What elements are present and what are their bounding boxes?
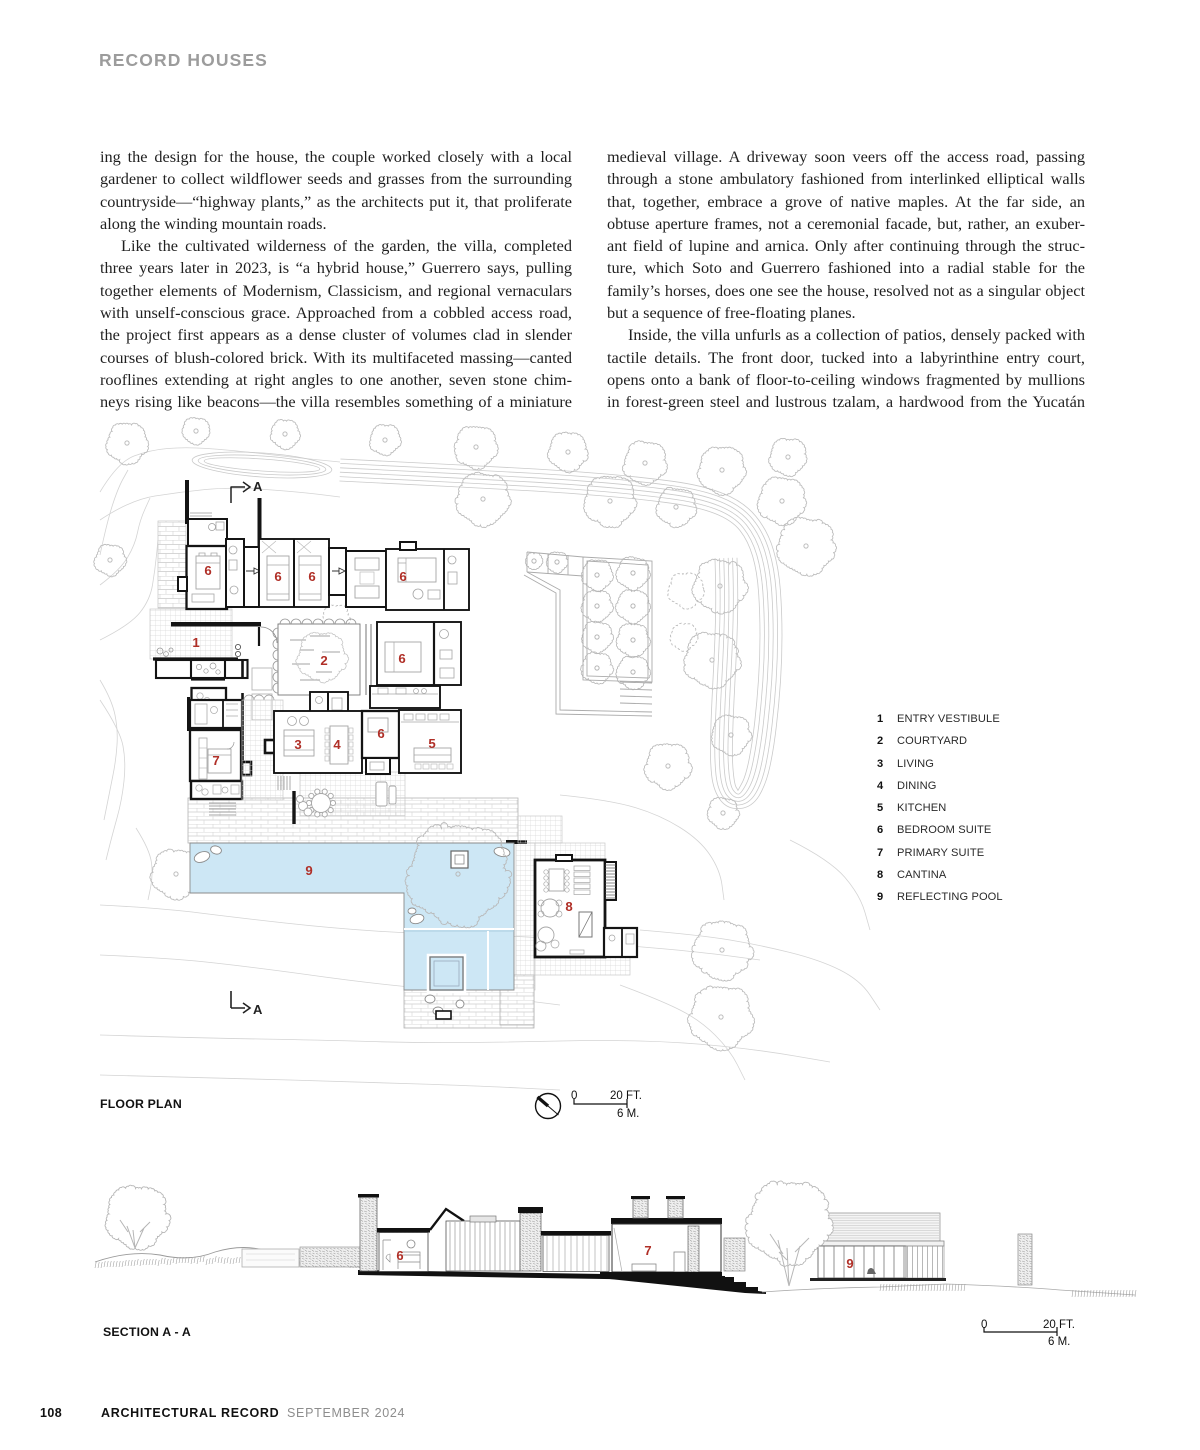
svg-text:5: 5 <box>428 736 435 751</box>
svg-text:6: 6 <box>399 569 406 584</box>
svg-text:A: A <box>253 479 263 494</box>
svg-text:2: 2 <box>320 653 327 668</box>
svg-text:3: 3 <box>294 737 301 752</box>
svg-text:1: 1 <box>192 635 199 650</box>
svg-text:7: 7 <box>212 753 219 768</box>
svg-text:6 M.: 6 M. <box>617 1108 639 1120</box>
svg-text:20 FT.: 20 FT. <box>610 1090 642 1102</box>
svg-text:6: 6 <box>204 563 211 578</box>
svg-text:6: 6 <box>396 1248 403 1263</box>
svg-text:9: 9 <box>305 863 312 878</box>
svg-text:6: 6 <box>398 651 405 666</box>
svg-text:6: 6 <box>308 569 315 584</box>
svg-text:7: 7 <box>644 1243 651 1258</box>
svg-text:4: 4 <box>333 737 341 752</box>
svg-text:A: A <box>253 1002 263 1017</box>
svg-text:6: 6 <box>274 569 281 584</box>
svg-text:20 FT.: 20 FT. <box>1043 1319 1075 1331</box>
svg-text:6 M.: 6 M. <box>1048 1336 1070 1348</box>
svg-text:9: 9 <box>846 1256 853 1271</box>
svg-text:6: 6 <box>377 726 384 741</box>
svg-text:8: 8 <box>565 899 572 914</box>
